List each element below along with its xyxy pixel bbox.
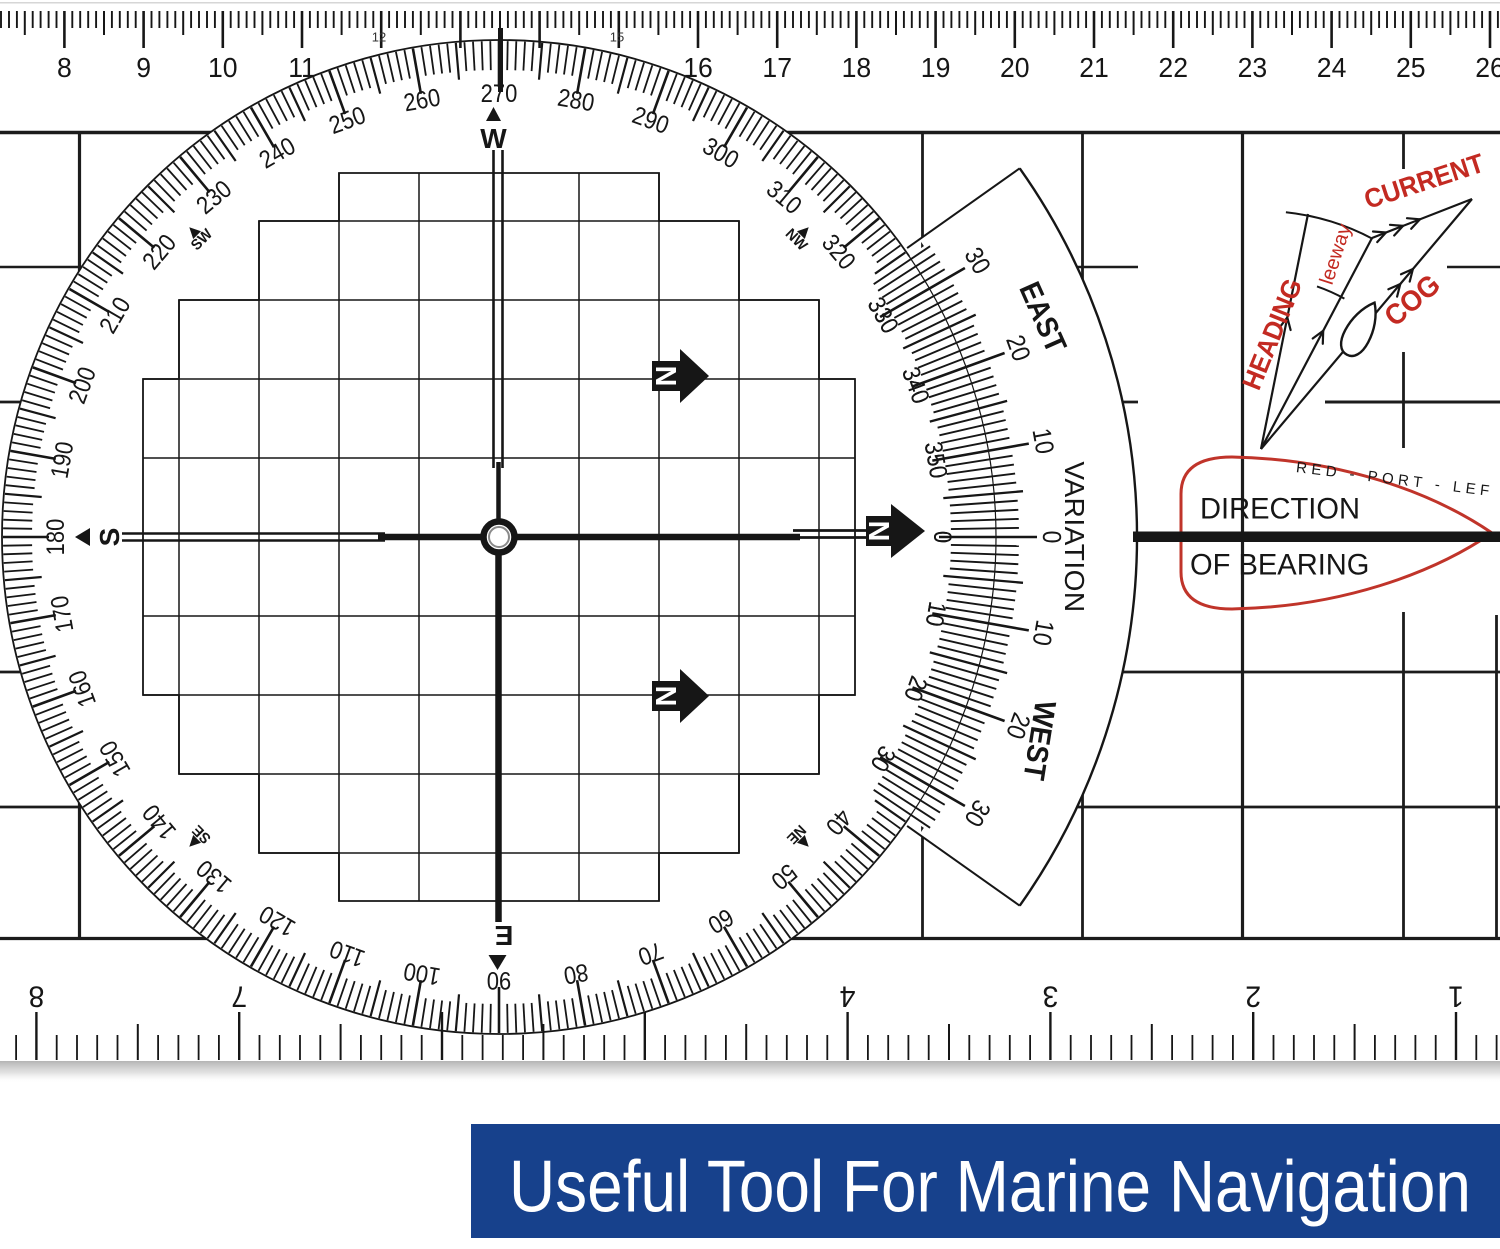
svg-text:3: 3 [1042,979,1058,1012]
svg-text:2: 2 [1245,979,1261,1012]
svg-text:15: 15 [610,30,624,45]
svg-text:8: 8 [28,979,44,1012]
svg-text:80: 80 [562,958,591,989]
svg-text:10: 10 [1026,618,1059,648]
svg-text:26: 26 [1475,51,1500,83]
svg-text:DIRECTION: DIRECTION [1200,492,1360,525]
svg-text:N: N [649,366,681,387]
svg-text:E: E [495,920,514,951]
svg-text:25: 25 [1396,51,1426,83]
svg-text:N: N [862,521,894,542]
svg-text:W: W [480,123,507,154]
svg-text:N: N [649,686,681,707]
svg-text:22: 22 [1158,51,1188,83]
svg-text:11: 11 [288,51,316,83]
svg-text:24: 24 [1317,51,1347,83]
svg-text:OF BEARING: OF BEARING [1190,548,1369,581]
svg-text:18: 18 [842,51,872,83]
svg-text:8: 8 [57,51,72,83]
svg-text:21: 21 [1079,51,1109,83]
svg-text:0: 0 [929,531,957,543]
svg-text:4: 4 [840,979,856,1012]
svg-text:12: 12 [372,30,386,45]
svg-text:7: 7 [231,979,247,1012]
svg-text:16: 16 [683,51,713,83]
svg-text:Useful Tool For Marine Navigat: Useful Tool For Marine Navigation [509,1147,1471,1228]
svg-text:1: 1 [1448,979,1464,1012]
svg-text:23: 23 [1238,51,1268,83]
svg-text:10: 10 [208,51,238,83]
svg-text:10: 10 [920,600,951,629]
svg-text:9: 9 [136,51,151,83]
svg-text:90: 90 [487,967,511,995]
svg-text:17: 17 [762,51,792,83]
svg-text:19: 19 [921,51,951,83]
svg-text:180: 180 [42,519,70,556]
svg-text:S: S [94,528,125,547]
svg-text:10: 10 [1026,426,1059,456]
svg-text:VARIATION: VARIATION [1059,461,1090,612]
svg-text:20: 20 [1000,51,1030,83]
